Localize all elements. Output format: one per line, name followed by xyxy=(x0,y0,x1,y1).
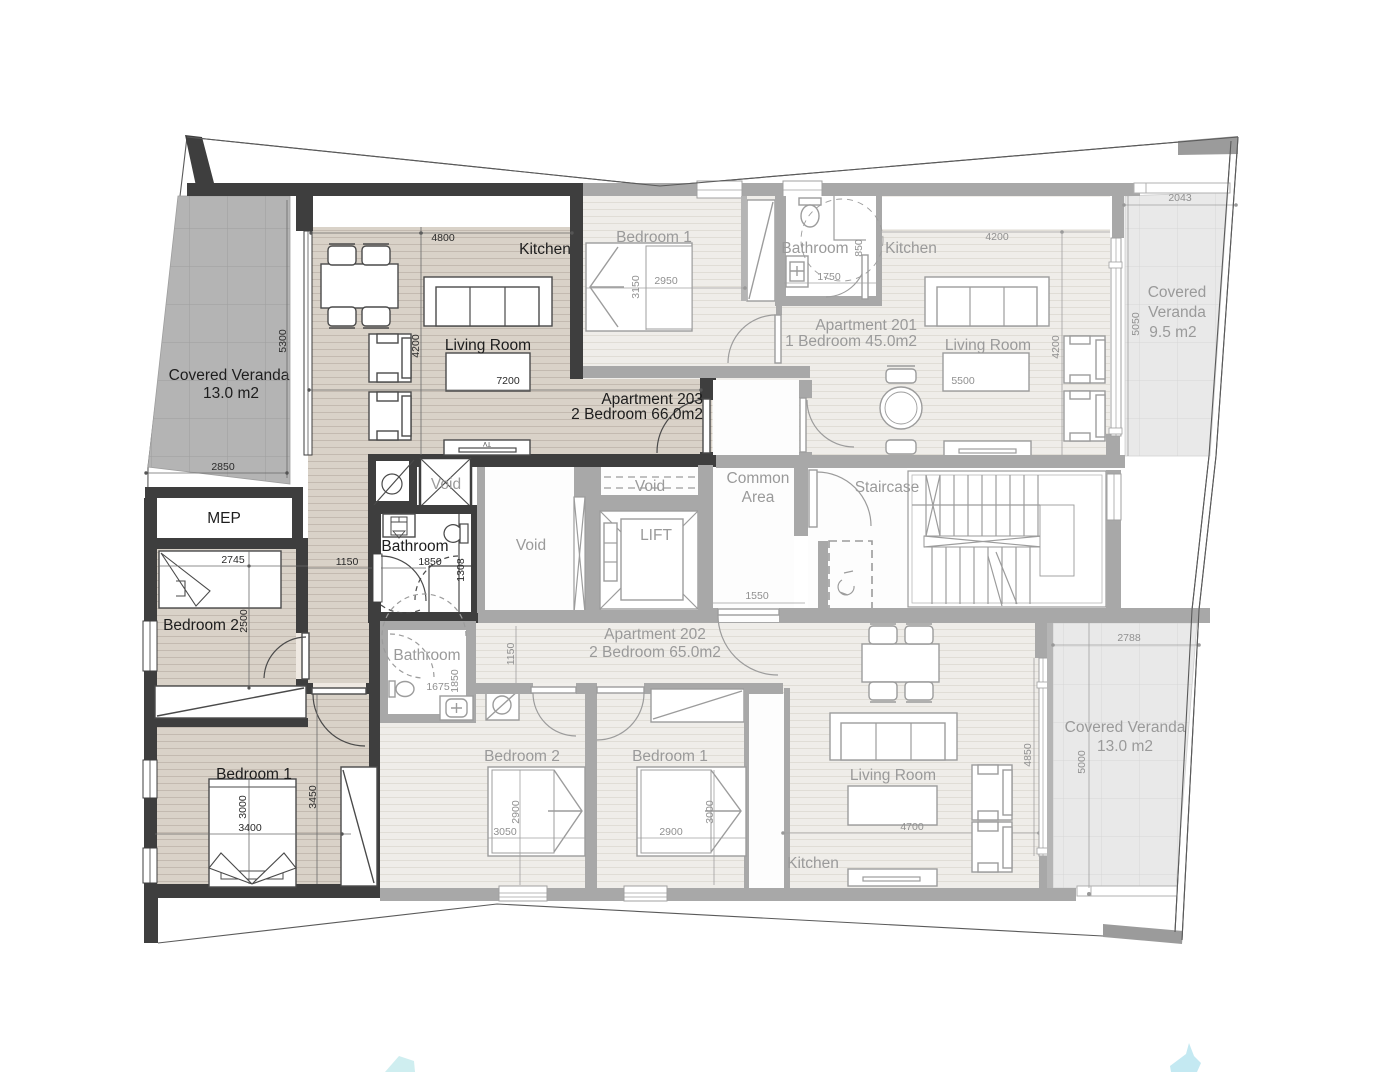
svg-text:13.0 m2: 13.0 m2 xyxy=(1097,738,1153,755)
svg-text:Kitchen: Kitchen xyxy=(519,241,571,258)
svg-text:Apartment 202: Apartment 202 xyxy=(604,626,706,643)
svg-text:2745: 2745 xyxy=(221,554,245,566)
svg-text:Bedroom 1: Bedroom 1 xyxy=(216,766,292,783)
svg-text:Bathroom: Bathroom xyxy=(393,647,460,664)
svg-text:2850: 2850 xyxy=(211,461,235,473)
svg-text:1308: 1308 xyxy=(455,558,467,582)
svg-text:Void: Void xyxy=(516,537,546,554)
svg-text:1 Bedroom 45.0m2: 1 Bedroom 45.0m2 xyxy=(785,333,917,350)
svg-text:Staircase: Staircase xyxy=(855,479,920,496)
svg-text:3150: 3150 xyxy=(630,275,642,299)
svg-text:1850: 1850 xyxy=(449,669,461,693)
svg-text:3400: 3400 xyxy=(238,822,262,834)
svg-text:13.0 m2: 13.0 m2 xyxy=(203,385,259,402)
svg-text:Kitchen: Kitchen xyxy=(787,855,839,872)
svg-text:2900: 2900 xyxy=(659,826,683,838)
svg-text:Veranda: Veranda xyxy=(1148,304,1206,321)
svg-text:2788: 2788 xyxy=(1117,632,1141,644)
svg-text:3050: 3050 xyxy=(493,826,517,838)
svg-text:Living Room: Living Room xyxy=(850,767,936,784)
svg-text:1150: 1150 xyxy=(505,643,517,666)
svg-text:1675: 1675 xyxy=(426,681,450,693)
svg-text:Bedroom 1: Bedroom 1 xyxy=(616,229,692,246)
svg-text:Bathroom: Bathroom xyxy=(781,240,848,257)
svg-text:Bathroom: Bathroom xyxy=(381,538,448,555)
svg-text:Bedroom 2: Bedroom 2 xyxy=(484,748,560,765)
svg-text:Bedroom 2: Bedroom 2 xyxy=(163,617,239,634)
svg-text:3000: 3000 xyxy=(237,795,249,819)
svg-text:1550: 1550 xyxy=(745,590,769,602)
svg-text:2900: 2900 xyxy=(510,800,522,824)
svg-text:MEP: MEP xyxy=(207,510,241,527)
svg-text:2 Bedroom 65.0m2: 2 Bedroom 65.0m2 xyxy=(589,644,721,661)
svg-text:Area: Area xyxy=(742,489,775,506)
svg-text:5000: 5000 xyxy=(1076,750,1088,774)
svg-text:2 Bedroom 66.0m2: 2 Bedroom 66.0m2 xyxy=(571,406,703,423)
svg-text:Covered: Covered xyxy=(1148,284,1207,301)
svg-text:Living Room: Living Room xyxy=(945,337,1031,354)
svg-text:2043: 2043 xyxy=(1168,192,1192,204)
svg-text:5300: 5300 xyxy=(277,329,289,353)
svg-text:5050: 5050 xyxy=(1130,312,1142,336)
svg-text:1750: 1750 xyxy=(817,271,841,283)
svg-text:5500: 5500 xyxy=(951,375,975,387)
svg-text:Covered Veranda: Covered Veranda xyxy=(1065,719,1186,736)
svg-text:4800: 4800 xyxy=(431,232,455,244)
svg-text:4850: 4850 xyxy=(1022,743,1034,767)
svg-text:4200: 4200 xyxy=(410,334,422,358)
svg-text:9.5 m2: 9.5 m2 xyxy=(1149,324,1196,341)
svg-text:3450: 3450 xyxy=(307,785,319,809)
svg-text:4200: 4200 xyxy=(1050,335,1062,359)
svg-text:2500: 2500 xyxy=(238,609,250,633)
svg-text:Common: Common xyxy=(727,470,790,487)
svg-text:4200: 4200 xyxy=(985,231,1009,243)
svg-text:7200: 7200 xyxy=(496,375,520,387)
svg-text:3000: 3000 xyxy=(704,800,716,824)
svg-text:LIFT: LIFT xyxy=(640,527,672,544)
svg-text:Void: Void xyxy=(431,476,461,493)
svg-text:2950: 2950 xyxy=(654,275,678,287)
svg-text:Living Room: Living Room xyxy=(445,337,531,354)
svg-text:1150: 1150 xyxy=(336,556,359,568)
svg-text:4700: 4700 xyxy=(900,821,924,833)
svg-text:Apartment 201: Apartment 201 xyxy=(815,317,917,334)
svg-text:Covered Veranda: Covered Veranda xyxy=(169,367,290,384)
svg-text:Kitchen: Kitchen xyxy=(885,240,937,257)
svg-text:1850: 1850 xyxy=(418,556,442,568)
svg-text:Bedroom 1: Bedroom 1 xyxy=(632,748,708,765)
svg-text:850: 850 xyxy=(853,239,865,257)
svg-text:Void: Void xyxy=(635,478,665,495)
svg-text:TV: TV xyxy=(483,440,491,446)
